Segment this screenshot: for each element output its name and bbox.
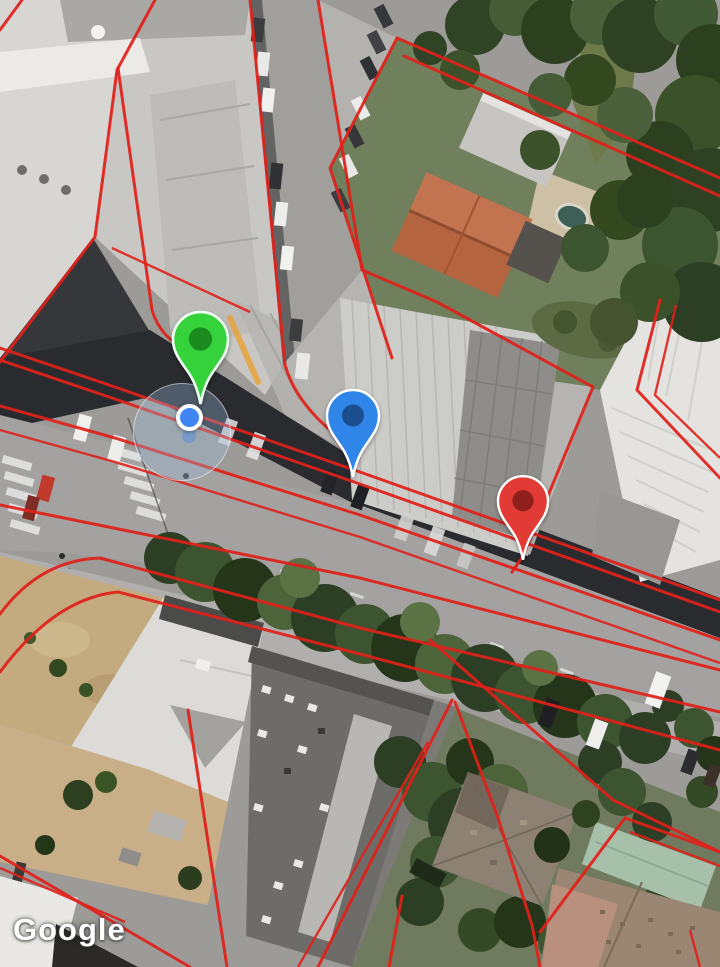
map-pin-green[interactable] bbox=[173, 312, 228, 404]
aerial-imagery bbox=[0, 0, 720, 967]
google-logo: Google bbox=[13, 912, 126, 948]
location-trail bbox=[182, 429, 196, 443]
satellite-map[interactable]: Google bbox=[0, 0, 720, 967]
map-pin-blue[interactable] bbox=[327, 390, 379, 477]
my-location-dot[interactable] bbox=[176, 404, 203, 431]
map-pin-red[interactable] bbox=[498, 476, 548, 560]
